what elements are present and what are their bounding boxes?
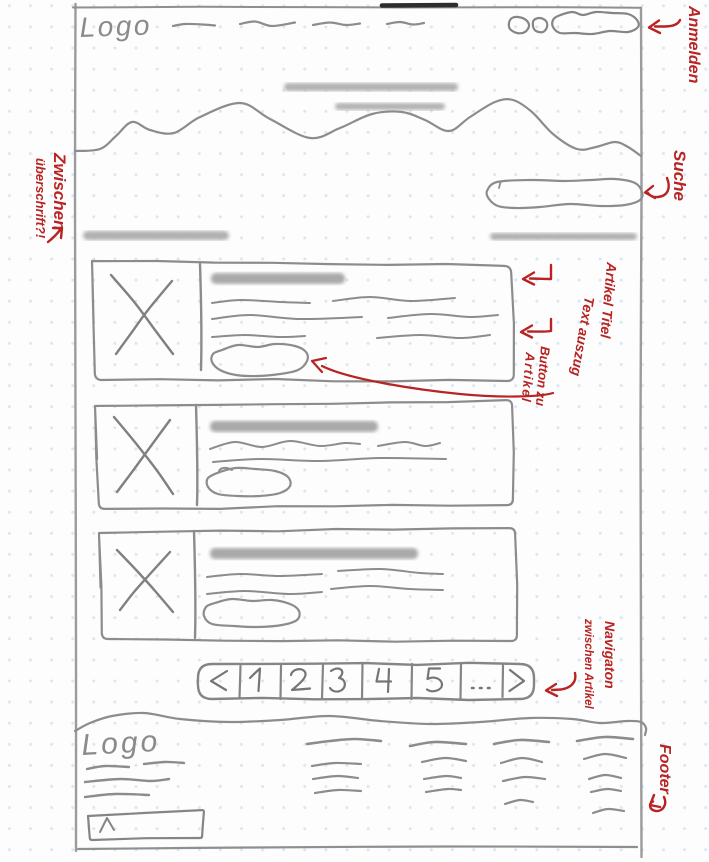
svg-text:Zwischen: Zwischen bbox=[50, 152, 69, 230]
svg-text:Suche: Suche bbox=[670, 150, 689, 201]
svg-text:Anmelden: Anmelden bbox=[685, 5, 702, 84]
svg-text:zwischen Artikel: zwischen Artikel bbox=[582, 618, 594, 709]
svg-text:Logo: Logo bbox=[81, 725, 161, 762]
svg-text:Navigaton: Navigaton bbox=[602, 621, 618, 689]
svg-text:überschrift?!: überschrift?! bbox=[33, 158, 48, 239]
svg-text:Footer: Footer bbox=[656, 744, 673, 795]
svg-text:Logo: Logo bbox=[79, 9, 152, 43]
